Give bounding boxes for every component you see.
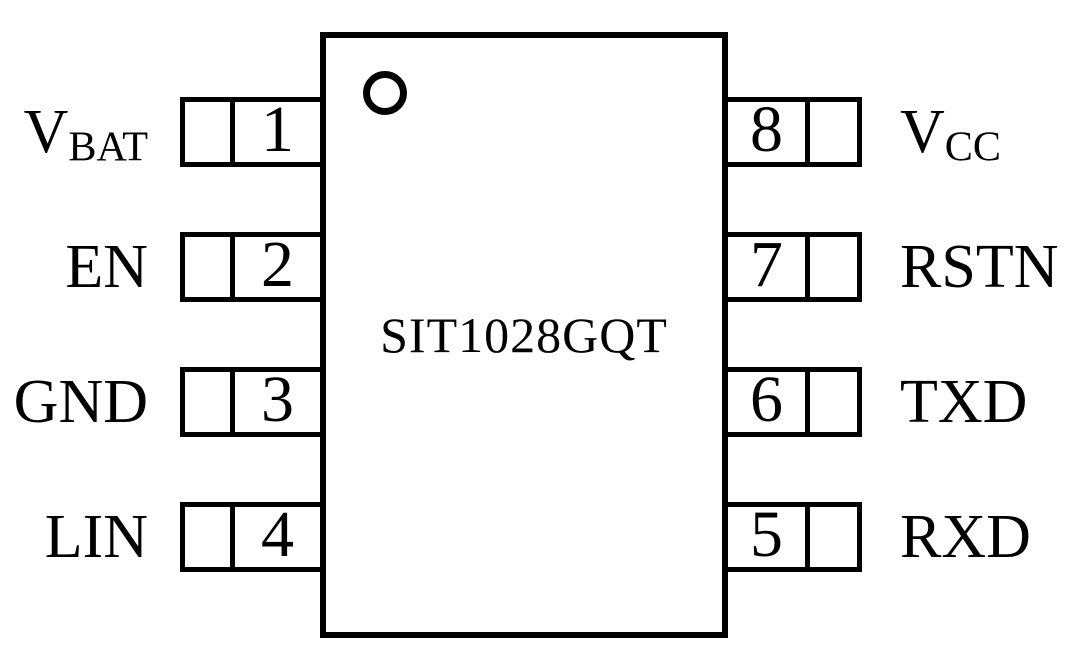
pin-number-4: 4 [235, 507, 320, 567]
pin-number-3: 3 [235, 372, 320, 432]
chip-part-number: SIT1028GQT [380, 306, 668, 364]
pin-box-8: 8 [728, 97, 862, 167]
pin-box-1: 1 [180, 97, 320, 167]
pin-pad-cell [185, 237, 235, 297]
pin-name-text: RSTN [900, 233, 1058, 301]
pin-name-text: RXD [900, 503, 1031, 571]
pin-pad-cell [805, 102, 857, 162]
pin-number-2: 2 [235, 237, 320, 297]
pin-name-text: V [900, 98, 945, 166]
pin-box-5: 5 [728, 502, 862, 572]
pin-number-7: 7 [728, 237, 805, 297]
pin-name-text: GND [14, 368, 148, 436]
pin-name-text: LIN [45, 503, 148, 571]
pin-number-8: 8 [728, 102, 805, 162]
pin-box-2: 2 [180, 232, 320, 302]
pin-pad-cell [185, 507, 235, 567]
pinout-diagram: VBAT EN GND LIN 1 2 3 4 SIT1028GQT 8 7 6… [0, 0, 1070, 670]
pin-box-3: 3 [180, 367, 320, 437]
pin-label-gnd: GND [0, 367, 148, 437]
pin-pad-cell [805, 372, 857, 432]
pin-label-rxd: RXD [900, 502, 1070, 572]
pin-label-vcc: VCC [900, 97, 1070, 167]
pin-name-text: V [24, 98, 69, 166]
pin-pad-cell [805, 507, 857, 567]
pin-label-lin: LIN [0, 502, 148, 572]
pin-box-6: 6 [728, 367, 862, 437]
pin-pad-cell [805, 237, 857, 297]
pin-pad-cell [185, 102, 235, 162]
pin-number-1: 1 [235, 102, 320, 162]
pin-pad-cell [185, 372, 235, 432]
pin-label-vbat: VBAT [0, 97, 148, 167]
pin1-indicator-icon [363, 71, 407, 115]
pin-box-4: 4 [180, 502, 320, 572]
pin-box-7: 7 [728, 232, 862, 302]
pin-number-6: 6 [728, 372, 805, 432]
pin-name-subscript: BAT [68, 123, 148, 170]
pin-label-txd: TXD [900, 367, 1070, 437]
pin-name-text: TXD [900, 368, 1027, 436]
pin-number-5: 5 [728, 507, 805, 567]
pin-label-rstn: RSTN [900, 232, 1070, 302]
pin-label-en: EN [0, 232, 148, 302]
chip-body: SIT1028GQT [320, 32, 728, 638]
pin-name-text: EN [65, 233, 148, 301]
pin-name-subscript: CC [945, 123, 1001, 170]
